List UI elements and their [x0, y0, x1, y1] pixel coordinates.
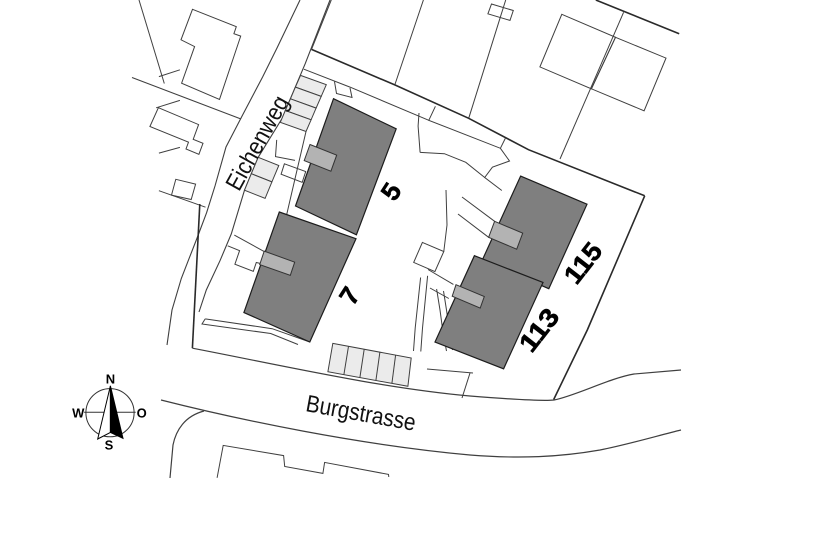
svg-text:S: S: [105, 438, 114, 453]
svg-text:O: O: [137, 406, 147, 421]
svg-text:W: W: [72, 406, 85, 421]
svg-text:N: N: [106, 372, 115, 387]
